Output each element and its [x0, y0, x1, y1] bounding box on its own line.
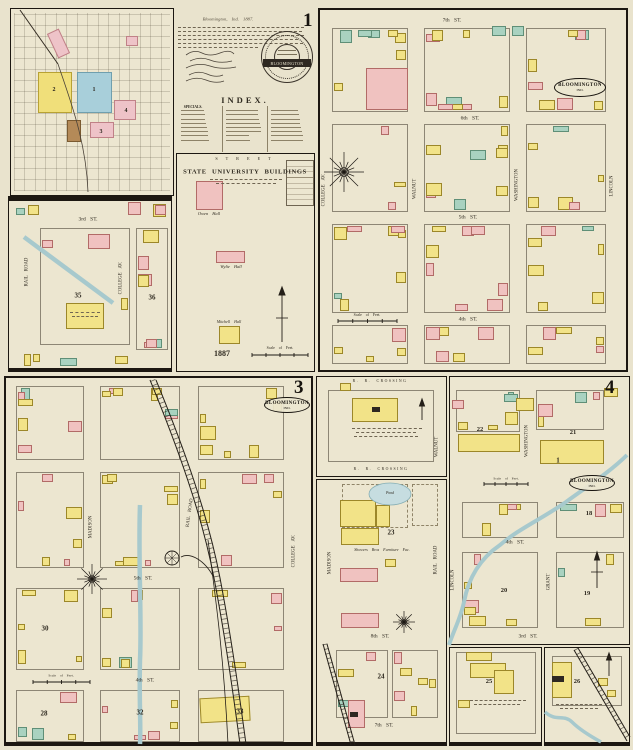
building [196, 181, 223, 210]
building [556, 327, 572, 334]
building [76, 656, 82, 662]
index-table-column [222, 106, 267, 152]
building [482, 523, 491, 536]
city-block [136, 228, 168, 350]
building [541, 226, 557, 236]
building [394, 691, 406, 701]
building [340, 383, 351, 391]
city-block [16, 472, 84, 568]
building [18, 624, 25, 630]
building [264, 474, 274, 484]
mill-caption-line [470, 700, 526, 701]
building [18, 501, 24, 511]
building [592, 292, 604, 304]
building [505, 412, 519, 425]
building [426, 145, 441, 155]
building [347, 226, 362, 232]
building [341, 613, 379, 628]
building [341, 528, 379, 545]
building [16, 208, 26, 215]
building [582, 226, 594, 232]
building [528, 143, 539, 150]
building [453, 353, 465, 362]
street-rail-road: RAIL ROAD [26, 258, 31, 287]
building [528, 347, 543, 355]
building [42, 474, 53, 482]
building [426, 183, 443, 195]
building [499, 504, 508, 515]
building [88, 234, 110, 249]
building [516, 398, 534, 411]
building [488, 425, 498, 430]
street-5th-st: 5th ST. [134, 576, 153, 582]
building [340, 30, 352, 43]
building [170, 722, 179, 729]
building [499, 96, 508, 109]
street-rail-road: RAIL ROAD [435, 546, 440, 575]
building [73, 539, 82, 548]
street-6th-st: 6th ST. [461, 116, 480, 122]
street-4th-st: 4th ST. [136, 678, 155, 684]
building [426, 327, 440, 340]
owen-hall-label: Owen Hall [198, 212, 220, 216]
city-block [100, 588, 180, 670]
building [385, 559, 396, 567]
street-washington: WASHINGTON [516, 169, 521, 201]
building [557, 98, 573, 111]
building [394, 652, 402, 664]
bloomington-stamp-sheet4: BLOOMINGTON IND. [569, 475, 615, 491]
building [598, 175, 605, 182]
building [558, 568, 566, 578]
building [42, 557, 50, 567]
index-sheet4-number: 4 [125, 108, 128, 114]
building [392, 328, 406, 342]
building [585, 618, 601, 626]
building [391, 226, 405, 234]
building [470, 150, 486, 160]
building [540, 440, 604, 464]
building [200, 414, 206, 423]
building [212, 590, 228, 598]
building [113, 388, 124, 397]
building [528, 197, 540, 209]
building [598, 244, 604, 255]
building [138, 275, 149, 286]
street-lincoln: LINCOLN [611, 175, 616, 196]
building [131, 590, 139, 603]
street-madison: MADISON [90, 516, 95, 538]
building [200, 426, 216, 440]
building [400, 668, 412, 676]
block-number-26: 26 [574, 679, 581, 686]
building [478, 327, 494, 341]
street-grant: GRANT [548, 574, 553, 591]
building [471, 226, 486, 235]
building [372, 407, 380, 412]
university-subtitle-line [210, 179, 282, 180]
building [200, 479, 206, 489]
building [596, 346, 605, 353]
street-college-av: COLLEGE AV. [323, 174, 328, 207]
mitchell-hall-label: Mitchell Hall [217, 320, 241, 324]
block-number-20: 20 [501, 588, 508, 595]
building [466, 652, 492, 661]
building [340, 299, 349, 311]
building [64, 590, 78, 602]
building [146, 339, 156, 349]
building [455, 304, 468, 312]
university-title: STATE UNIVERSITY BUILDINGS [183, 170, 307, 177]
building [429, 679, 437, 688]
rr-crossing-bottom: R. R. CROSSING [354, 468, 409, 472]
building [593, 392, 599, 401]
index-district [126, 36, 138, 46]
building [366, 356, 375, 363]
specials-label: SPECIALS. [184, 106, 202, 110]
street-lincoln: LINCOLN [452, 569, 457, 590]
building [33, 354, 40, 362]
building [18, 399, 33, 407]
sheet-4-number: 4 [605, 378, 615, 397]
building [334, 227, 347, 240]
building [463, 30, 470, 38]
building [496, 148, 509, 158]
street-college-av: COLLEGE AV. [293, 535, 298, 568]
wylie-hall-label: Wylie Hall [220, 265, 242, 269]
building [610, 504, 623, 513]
building [458, 700, 470, 708]
building [340, 568, 378, 582]
building [340, 500, 376, 527]
building [102, 391, 112, 397]
building [411, 706, 417, 716]
building [494, 670, 514, 694]
building [121, 659, 130, 669]
block-number-33: 33 [237, 709, 244, 716]
block-number-24: 24 [378, 674, 385, 681]
building [18, 418, 28, 431]
building [458, 422, 468, 430]
building [219, 326, 240, 344]
index-table [178, 106, 312, 152]
mill-caption-line4 [560, 708, 598, 709]
building [18, 727, 27, 736]
building [155, 205, 167, 215]
building [426, 93, 438, 106]
pond-label: Pond [386, 492, 394, 496]
building [165, 409, 179, 416]
building [145, 560, 152, 567]
block-number-25: 25 [486, 679, 493, 686]
index-table-column [178, 106, 222, 152]
building [452, 104, 463, 110]
building [492, 26, 506, 36]
building [539, 100, 555, 110]
building [388, 202, 396, 210]
building [128, 202, 142, 215]
building [568, 30, 578, 37]
street-7th-st: 7th ST. [375, 723, 394, 729]
building [596, 337, 605, 346]
building [388, 30, 397, 37]
building [528, 238, 543, 247]
building [553, 126, 569, 133]
building [432, 30, 442, 42]
building [200, 510, 211, 523]
scale-label: Scale of Feet. [267, 347, 294, 351]
rr-crossing-top: R. R. CROSSING [353, 380, 408, 384]
building [148, 731, 160, 740]
building [221, 555, 232, 567]
building [18, 445, 32, 452]
building [595, 504, 606, 518]
index-district [67, 120, 81, 142]
building [28, 205, 40, 216]
street-5th-st: 5th ST. [459, 215, 478, 221]
block-number-28: 28 [41, 711, 48, 718]
bloomington-stamp-sheet1: BLOOMINGTON IND. [554, 78, 606, 97]
building [381, 126, 390, 135]
building [496, 186, 509, 196]
city-block [100, 386, 180, 460]
bloomington-stamp-sheet3: BLOOMINGTON IND. [264, 397, 310, 413]
building [487, 299, 502, 311]
dashed-lot-outline2 [412, 484, 438, 526]
building [24, 354, 31, 366]
building [454, 199, 466, 210]
building [552, 676, 564, 682]
scale-label: Scale of Feet. [354, 314, 381, 318]
foundry-caption-line2 [72, 316, 98, 317]
showers-factory-label: Showers Bros Furniture Fac. [354, 548, 410, 552]
mill-caption-line3 [556, 704, 602, 705]
building [271, 593, 282, 604]
building [60, 358, 76, 366]
block-number-32: 32 [137, 710, 144, 717]
year-label: 1887 [214, 350, 230, 358]
building [334, 83, 343, 91]
street-walnut: WALNUT [414, 179, 419, 199]
building [506, 619, 516, 627]
street-7th-st: 7th ST. [443, 18, 462, 24]
index-title: INDEX. [221, 96, 269, 105]
building [200, 445, 213, 455]
building [458, 434, 520, 452]
building [171, 700, 179, 708]
block-number-35: 35 [75, 293, 82, 300]
index-table-column [267, 106, 312, 152]
building [64, 559, 71, 566]
university-subtitle-line2 [216, 183, 276, 184]
block-number-30: 30 [42, 626, 49, 633]
building [338, 669, 354, 678]
building [394, 182, 406, 187]
building [167, 494, 179, 504]
building [418, 678, 428, 685]
sanborn-map-page: Bloomington, Ind. 1887. BLOOMINGTON 1 3 … [0, 0, 633, 750]
building [426, 245, 440, 258]
building [68, 734, 76, 741]
city-block [424, 124, 510, 212]
building [152, 388, 162, 396]
street-college-av: COLLEGE AV. [120, 262, 125, 295]
building [138, 256, 150, 270]
building [224, 451, 231, 458]
index-sheet1-number: 1 [93, 87, 96, 93]
building [32, 728, 44, 740]
building [512, 26, 524, 36]
building [68, 421, 83, 432]
building [143, 230, 159, 244]
factory-caption-line [352, 428, 422, 429]
building [216, 251, 245, 263]
sheet-1-number: 1 [303, 11, 313, 30]
building [42, 240, 53, 248]
city-block [198, 472, 284, 568]
building [350, 712, 358, 717]
dateline: Bloomington, Ind. 1887. [203, 18, 254, 23]
scale-label: Scale of Feet. [48, 674, 73, 678]
street-walnut: WALNUT [436, 437, 441, 457]
block-number-21: 21 [570, 430, 577, 437]
building [134, 735, 146, 740]
building [436, 351, 449, 363]
street-4th-st: 4th ST. [506, 540, 525, 546]
building [528, 265, 544, 277]
building [121, 298, 129, 310]
block-number-18: 18 [586, 511, 593, 518]
building [366, 68, 408, 110]
building [569, 202, 580, 211]
street-8th-st: 8th ST. [371, 634, 390, 640]
building [498, 283, 508, 297]
seal-text: BLOOMINGTON [263, 59, 311, 67]
index-sheet2-number: 2 [53, 87, 56, 93]
sheet-3-number: 3 [294, 378, 304, 397]
building [334, 347, 343, 354]
building [164, 486, 178, 491]
building [598, 678, 608, 686]
building [538, 302, 549, 311]
building [18, 650, 27, 664]
building [469, 616, 485, 627]
building [22, 590, 36, 597]
building [102, 608, 112, 619]
building [474, 554, 481, 566]
street-3rd-st: 3rd ST. [78, 217, 97, 223]
street-madison: MADISON [329, 552, 334, 574]
building [334, 293, 343, 299]
building [560, 504, 577, 511]
building [438, 104, 452, 110]
building [501, 126, 509, 135]
building [396, 272, 406, 283]
building [366, 652, 376, 662]
building [115, 356, 128, 365]
building [538, 404, 554, 418]
city-block [332, 124, 408, 212]
building [397, 348, 407, 357]
scale-label: Scale of Feet. [493, 477, 518, 481]
building [66, 507, 82, 518]
handwritten-signatures [186, 51, 236, 82]
building [432, 226, 446, 232]
building [102, 706, 109, 712]
building [274, 626, 283, 631]
building [464, 582, 472, 590]
building [102, 658, 112, 667]
building [528, 59, 538, 71]
building [426, 263, 435, 276]
index-sheet3-number: 3 [100, 129, 103, 135]
block-number-36: 36 [149, 295, 156, 302]
building [543, 327, 555, 340]
mill-caption-line2 [474, 704, 520, 705]
building [462, 104, 472, 110]
building [273, 491, 283, 498]
block-number-19: 19 [584, 591, 591, 598]
factory-caption-line3 [354, 436, 418, 437]
building [232, 662, 245, 668]
factory-caption-line2 [356, 432, 416, 433]
building [594, 101, 603, 110]
foundry-caption-line [70, 312, 100, 313]
building [464, 607, 477, 615]
building [606, 554, 615, 566]
street-3rd-st: 3rd ST. [518, 634, 537, 640]
street-label-top: S T R E E T [215, 157, 272, 161]
building [60, 692, 77, 703]
building [528, 82, 544, 91]
building [607, 690, 616, 697]
university-legend-box [286, 160, 314, 206]
building [249, 445, 259, 459]
block-number-22: 22 [477, 427, 484, 434]
building [123, 557, 139, 566]
building [396, 50, 407, 60]
street-washington: WASHINGTON [526, 425, 531, 457]
building [358, 30, 372, 37]
building [107, 474, 117, 482]
building [452, 400, 464, 409]
building [376, 505, 390, 527]
building [242, 474, 257, 484]
building [575, 392, 587, 404]
block-number-1: 1 [556, 458, 560, 465]
block-number-23: 23 [388, 530, 395, 537]
street-4th-st: 4th ST. [459, 317, 478, 323]
